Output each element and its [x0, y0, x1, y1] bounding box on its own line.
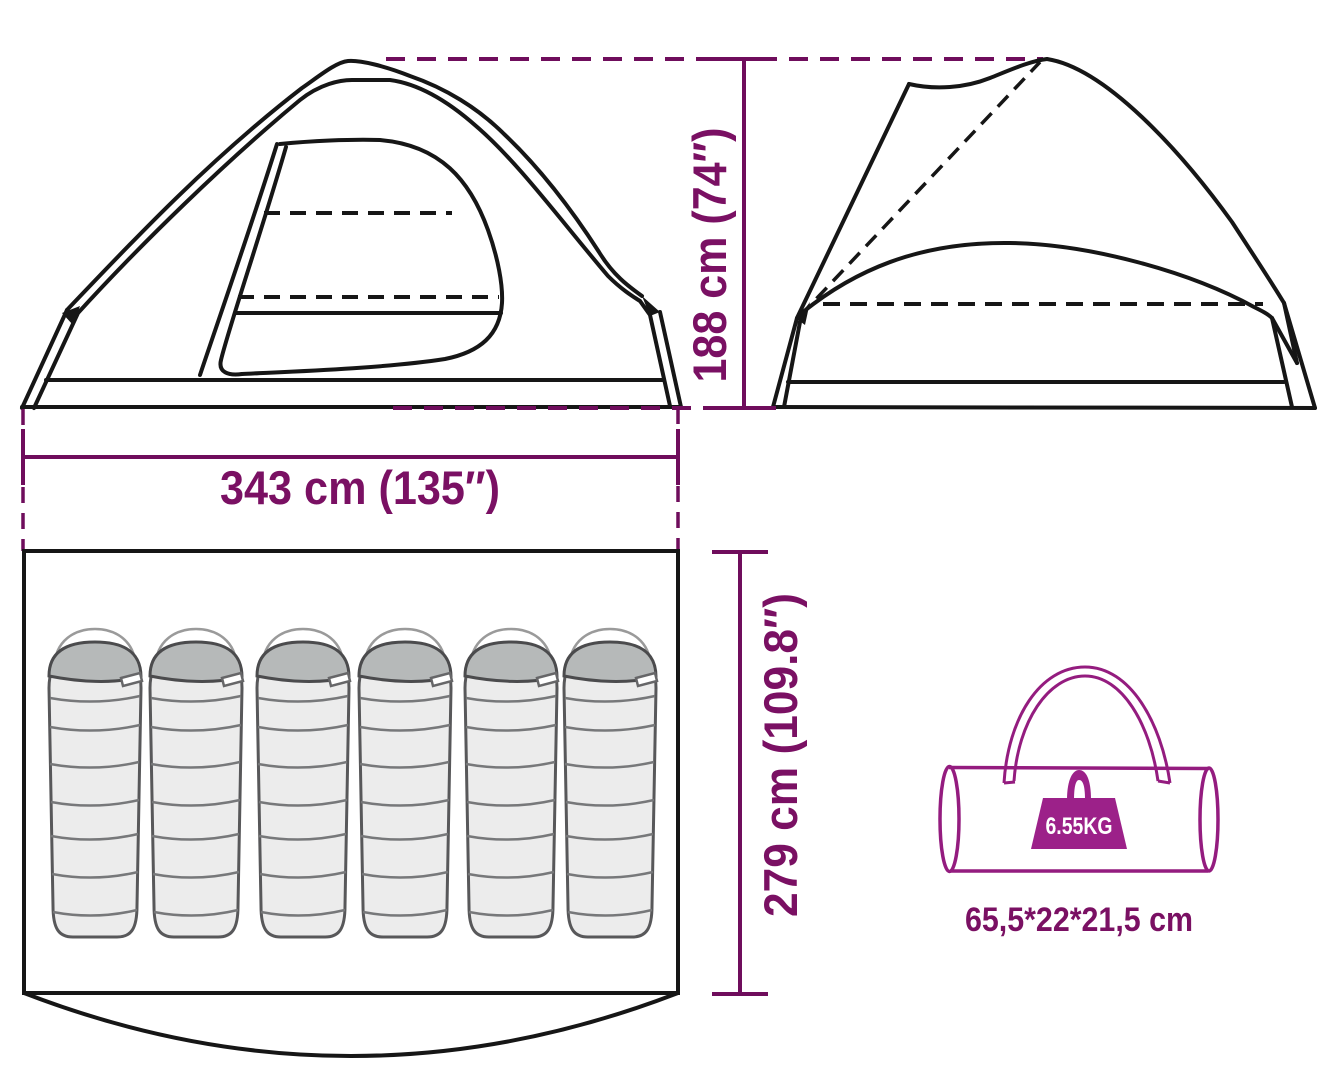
svg-text:279 cm (109.8″): 279 cm (109.8″)	[754, 593, 807, 917]
svg-text:343 cm (135″): 343 cm (135″)	[220, 461, 500, 514]
svg-text:188 cm (74″): 188 cm (74″)	[683, 128, 736, 383]
svg-text:65,5*22*21,5 cm: 65,5*22*21,5 cm	[965, 901, 1193, 939]
svg-text:6.55KG: 6.55KG	[1046, 813, 1113, 840]
